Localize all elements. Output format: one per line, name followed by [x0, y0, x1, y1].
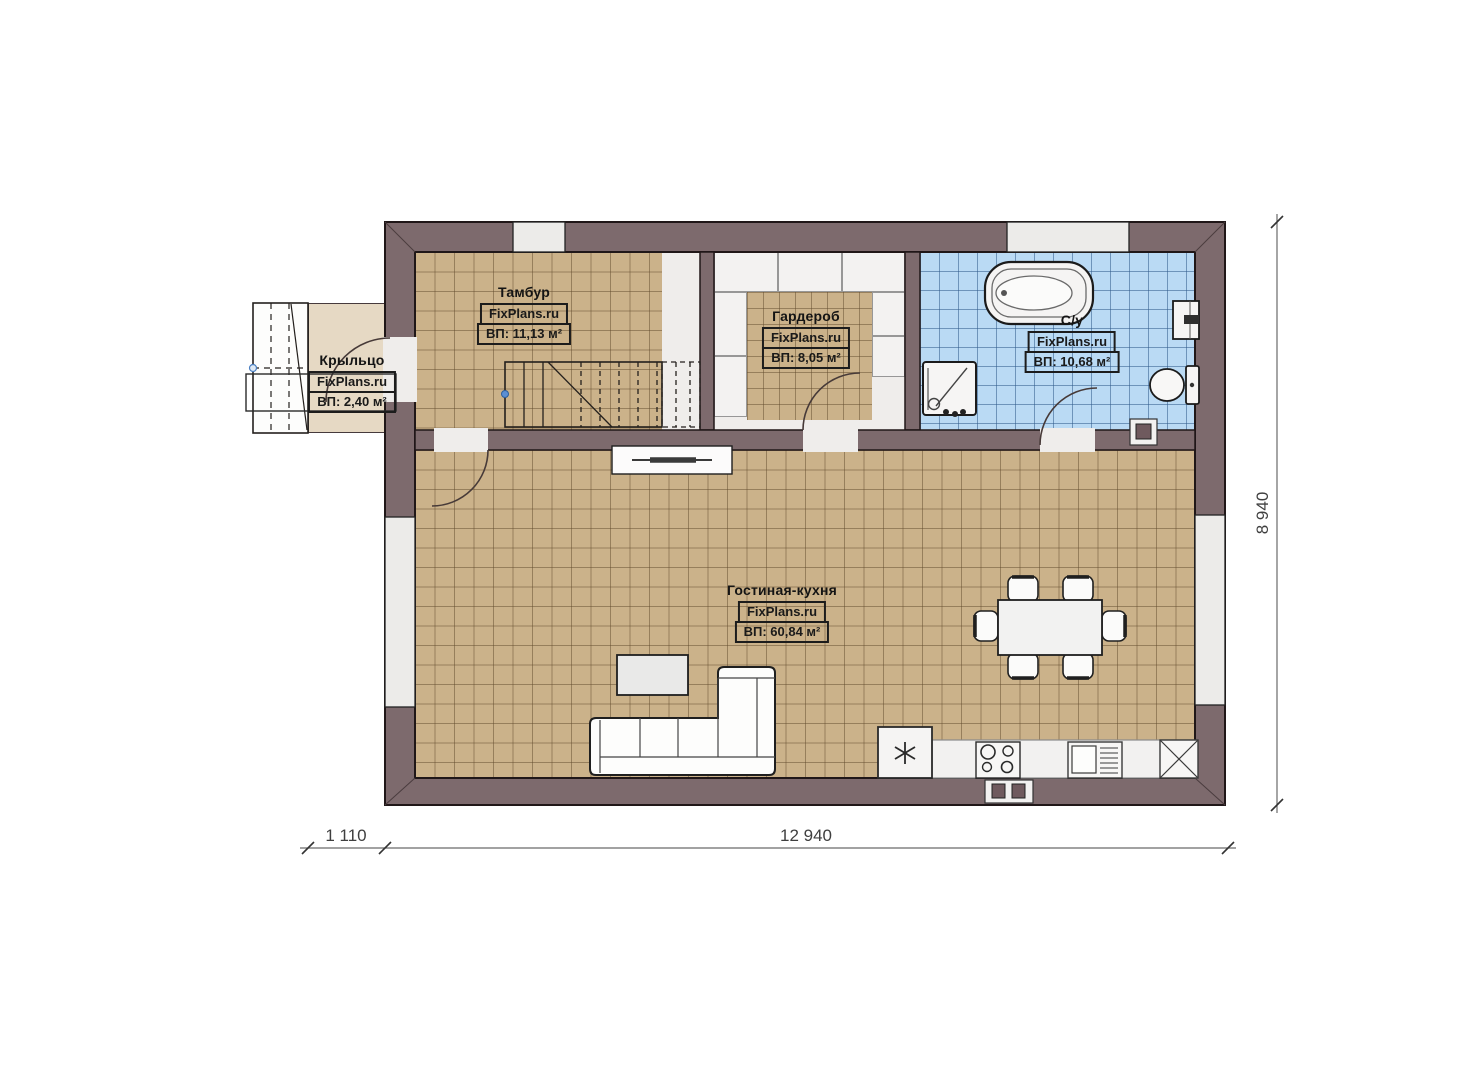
wardrobe-door-arc	[803, 373, 860, 430]
room-name: Гостиная-кухня	[727, 582, 837, 598]
room-area: ВП: 10,68 м²	[1025, 351, 1120, 373]
room-label-wardrobe: Гардероб FixPlans.ru ВП: 8,05 м²	[762, 308, 850, 369]
dining-set	[974, 576, 1126, 679]
room-name: Тамбур	[477, 284, 571, 300]
watermark: FixPlans.ru	[308, 371, 396, 393]
stove-vent	[985, 780, 1033, 803]
floor-plan: Тамбур FixPlans.ru ВП: 11,13 м² Гардероб…	[0, 0, 1473, 1080]
shower	[923, 362, 976, 417]
dining-table	[998, 600, 1102, 655]
room-name: Гардероб	[762, 308, 850, 324]
window-top-vestibule	[513, 222, 565, 252]
dimension-house-height: 8 940	[1253, 492, 1273, 535]
room-label-bathroom: С/у FixPlans.ru ВП: 10,68 м²	[1025, 312, 1120, 373]
kitchen-sink	[1160, 740, 1198, 778]
room-name: С/у	[1025, 312, 1120, 328]
watermark: FixPlans.ru	[762, 327, 850, 349]
room-area: ВП: 60,84 м²	[735, 621, 830, 643]
staircase	[502, 362, 701, 427]
dimension-porch-width: 1 110	[325, 826, 366, 846]
room-area: ВП: 11,13 м²	[477, 323, 571, 345]
bathroom-sink	[1173, 301, 1199, 339]
room-label-vestibule: Тамбур FixPlans.ru ВП: 11,13 м²	[477, 284, 571, 345]
living-door-arc	[432, 450, 488, 506]
fridge	[878, 727, 932, 778]
coffee-table	[617, 655, 688, 695]
stove	[976, 742, 1020, 778]
room-area: ВП: 2,40 м²	[308, 391, 396, 413]
plan-linework	[0, 0, 1473, 1080]
watermark: FixPlans.ru	[1028, 331, 1116, 353]
room-label-living-kitchen: Гостиная-кухня FixPlans.ru ВП: 60,84 м²	[727, 582, 837, 643]
kitchen-counter	[932, 740, 1197, 778]
watermark: FixPlans.ru	[480, 303, 568, 325]
radiator	[612, 446, 732, 474]
wall-vent	[1130, 419, 1157, 445]
porch-pivot-dot	[250, 365, 257, 372]
room-area: ВП: 8,05 м²	[762, 347, 850, 369]
room-label-porch: Крыльцо FixPlans.ru ВП: 2,40 м²	[308, 352, 396, 413]
window-left-living	[385, 517, 415, 707]
porch-steps	[250, 303, 309, 433]
dimension-house-width: 12 940	[780, 826, 832, 846]
room-name: Крыльцо	[308, 352, 396, 368]
toilet	[1150, 366, 1199, 404]
window-right-living	[1195, 515, 1225, 705]
stair-pivot-dot	[502, 391, 509, 398]
window-top-bathroom	[1007, 222, 1129, 252]
oven	[1068, 742, 1122, 778]
watermark: FixPlans.ru	[738, 601, 826, 623]
